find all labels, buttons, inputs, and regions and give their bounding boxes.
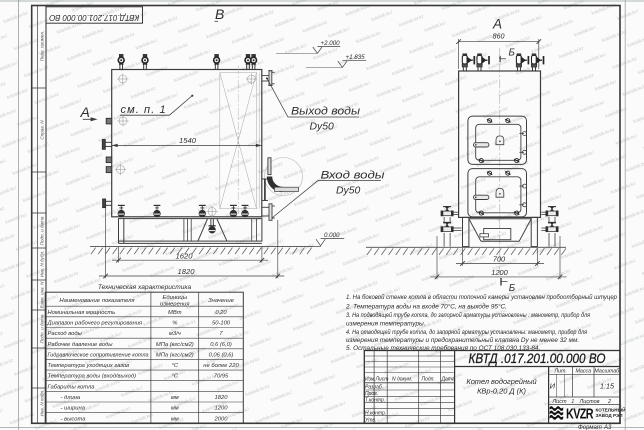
svg-text:1540: 1540 bbox=[179, 136, 197, 145]
svg-text:КВТД.017.201.00.000 ВО: КВТД.017.201.00.000 ВО bbox=[49, 13, 139, 22]
svg-text:Изм.: Изм. bbox=[365, 377, 376, 383]
svg-text:Лит.: Лит. bbox=[553, 368, 566, 374]
svg-text:4. На отводящей трубе котла,: 4. На отводящей трубе котла, до запорной… bbox=[346, 328, 587, 336]
svg-text:измерения температуры и предох: измерения температуры и предохранительны… bbox=[346, 336, 579, 344]
svg-text:Номинальная мощность: Номинальная мощность bbox=[48, 310, 116, 316]
svg-text:измерения: измерения bbox=[160, 302, 190, 308]
svg-text:Перв. примен.: Перв. примен. bbox=[40, 31, 45, 62]
svg-text:Лист: Лист bbox=[375, 377, 389, 383]
svg-text:Значение: Значение bbox=[208, 298, 235, 304]
svg-text:KVZR: KVZR bbox=[566, 407, 594, 423]
svg-text:Утв.: Утв. bbox=[365, 417, 376, 423]
svg-text:КВр-0,20 Д (К): КВр-0,20 Д (К) bbox=[477, 387, 526, 396]
svg-text:Техническая характеристика: Техническая характеристика bbox=[98, 284, 192, 291]
svg-text:1200: 1200 bbox=[491, 268, 508, 277]
svg-text:1820: 1820 bbox=[178, 267, 196, 276]
svg-text:Инв. N подл.: Инв. N подл. bbox=[40, 390, 45, 417]
svg-text:мм: мм bbox=[171, 395, 179, 401]
svg-text:2. Температура воды на входе: 2. Температура воды на входе 70°С, на вы… bbox=[345, 302, 507, 310]
svg-text:Пров.: Пров. bbox=[365, 391, 378, 397]
svg-text:70/95: 70/95 bbox=[214, 374, 229, 380]
svg-text:- длина: - длина bbox=[61, 395, 81, 401]
svg-text:- высота: - высота bbox=[61, 416, 87, 422]
svg-text:Расход воды: Расход воды bbox=[48, 331, 83, 337]
svg-text:не более 220: не более 220 bbox=[203, 363, 239, 369]
svg-text:мм: мм bbox=[171, 416, 179, 422]
svg-text:Котел водогрейный: Котел водогрейный bbox=[466, 377, 536, 386]
svg-text:МПа (кгс/см2): МПа (кгс/см2) bbox=[156, 342, 194, 348]
svg-text:Т.контр.: Т.контр. bbox=[365, 397, 385, 403]
svg-text:1200: 1200 bbox=[215, 406, 229, 412]
svg-text:Справ. N: Справ. N bbox=[40, 120, 45, 140]
svg-text:И: И bbox=[550, 382, 556, 391]
svg-text:МПа (кгс/см2): МПа (кгс/см2) bbox=[156, 352, 194, 358]
svg-text:А: А bbox=[80, 104, 90, 120]
svg-text:Гидравлическое сопротивление к: Гидравлическое сопротивление котла bbox=[48, 352, 150, 358]
svg-text:Разраб.: Разраб. bbox=[365, 385, 383, 391]
svg-text:В: В bbox=[215, 6, 224, 22]
svg-text:Диапазон рабочего регулировани: Диапазон рабочего регулирования bbox=[47, 321, 143, 327]
svg-text:860: 860 bbox=[493, 32, 505, 41]
svg-text:- ширина: - ширина bbox=[61, 406, 86, 412]
svg-text:1: 1 bbox=[571, 399, 574, 405]
svg-text:А3: А3 bbox=[603, 425, 612, 430]
svg-text:Дата: Дата bbox=[441, 377, 455, 383]
svg-text:Подп. и дата: Подп. и дата bbox=[40, 216, 45, 245]
svg-text:Температура воды (вход/выход): Температура воды (вход/выход) bbox=[48, 374, 137, 380]
svg-text:Лист: Лист bbox=[551, 399, 567, 405]
svg-text:Масса: Масса bbox=[575, 368, 591, 374]
svg-text:+1.835: +1.835 bbox=[346, 54, 366, 61]
svg-text:700: 700 bbox=[493, 255, 506, 264]
svg-text:N докум.: N докум. bbox=[392, 377, 412, 383]
svg-text:м3/ч: м3/ч bbox=[169, 331, 181, 337]
svg-text:Листов: Листов bbox=[578, 399, 599, 405]
svg-text:50-100: 50-100 bbox=[212, 321, 231, 327]
svg-text:измерения температуры.: измерения температуры. bbox=[346, 321, 426, 328]
svg-text:Dy50: Dy50 bbox=[310, 122, 334, 133]
svg-text:Н.контр.: Н.контр. bbox=[365, 410, 386, 416]
svg-text:2000: 2000 bbox=[214, 416, 229, 422]
svg-text:Dy50: Dy50 bbox=[336, 185, 360, 196]
svg-text:1:15: 1:15 bbox=[600, 382, 615, 391]
svg-text:Формат: Формат bbox=[578, 425, 602, 430]
svg-text:А: А bbox=[492, 17, 502, 32]
svg-text:0.000: 0.000 bbox=[324, 232, 340, 239]
svg-text:мм: мм bbox=[171, 406, 179, 412]
svg-text:Выход воды: Выход воды bbox=[291, 106, 361, 118]
svg-text:КВТД .017.201.00.000 ВО: КВТД .017.201.00.000 ВО bbox=[469, 351, 606, 366]
svg-text:3. На подводящей трубе котла,: 3. На подводящей трубе котла, до запорно… bbox=[346, 311, 590, 319]
svg-text:Габариты котла: Габариты котла bbox=[48, 384, 96, 390]
svg-text:0,6 (6,0): 0,6 (6,0) bbox=[210, 342, 232, 348]
svg-text:Инв. N дубл.: Инв. N дубл. bbox=[40, 251, 45, 278]
svg-text:1. На боковой стенке котла в: 1. На боковой стенке котла в области топ… bbox=[346, 293, 617, 301]
svg-text:1820: 1820 bbox=[215, 395, 229, 401]
svg-text:ЗАВОД РЭП: ЗАВОД РЭП bbox=[596, 413, 623, 418]
svg-text:Вход воды: Вход воды bbox=[321, 169, 386, 181]
svg-text:КОТЕЛЬНЫЙ: КОТЕЛЬНЫЙ bbox=[596, 406, 626, 413]
svg-text:0,20: 0,20 bbox=[215, 310, 227, 316]
svg-text:см. п. 1: см. п. 1 bbox=[121, 104, 167, 116]
svg-text:Подп. и дата: Подп. и дата bbox=[40, 314, 45, 343]
svg-text:°С: °С bbox=[172, 374, 179, 380]
svg-text:Взам. инв. N: Взам. инв. N bbox=[40, 281, 45, 308]
svg-text:Б: Б bbox=[509, 283, 516, 294]
svg-text:Наименование показателя: Наименование показателя bbox=[59, 298, 135, 304]
svg-text:°С: °С bbox=[172, 363, 179, 369]
svg-text:Б: Б bbox=[509, 48, 516, 59]
svg-text:0,06 (0,6): 0,06 (0,6) bbox=[209, 352, 234, 358]
svg-text:Температура уходящих газов: Температура уходящих газов bbox=[48, 363, 130, 369]
svg-text:+2.000: +2.000 bbox=[321, 40, 341, 47]
svg-text:1620: 1620 bbox=[176, 251, 194, 260]
svg-text:Рабочее давление воды: Рабочее давление воды bbox=[48, 342, 114, 348]
svg-text:МВт: МВт bbox=[168, 310, 182, 316]
svg-text:Единицы: Единицы bbox=[162, 295, 187, 301]
svg-text:Подп.: Подп. bbox=[422, 377, 435, 383]
svg-text:Масштаб: Масштаб bbox=[594, 368, 620, 374]
svg-text:%: % bbox=[172, 321, 177, 327]
svg-text:2: 2 bbox=[607, 399, 611, 405]
